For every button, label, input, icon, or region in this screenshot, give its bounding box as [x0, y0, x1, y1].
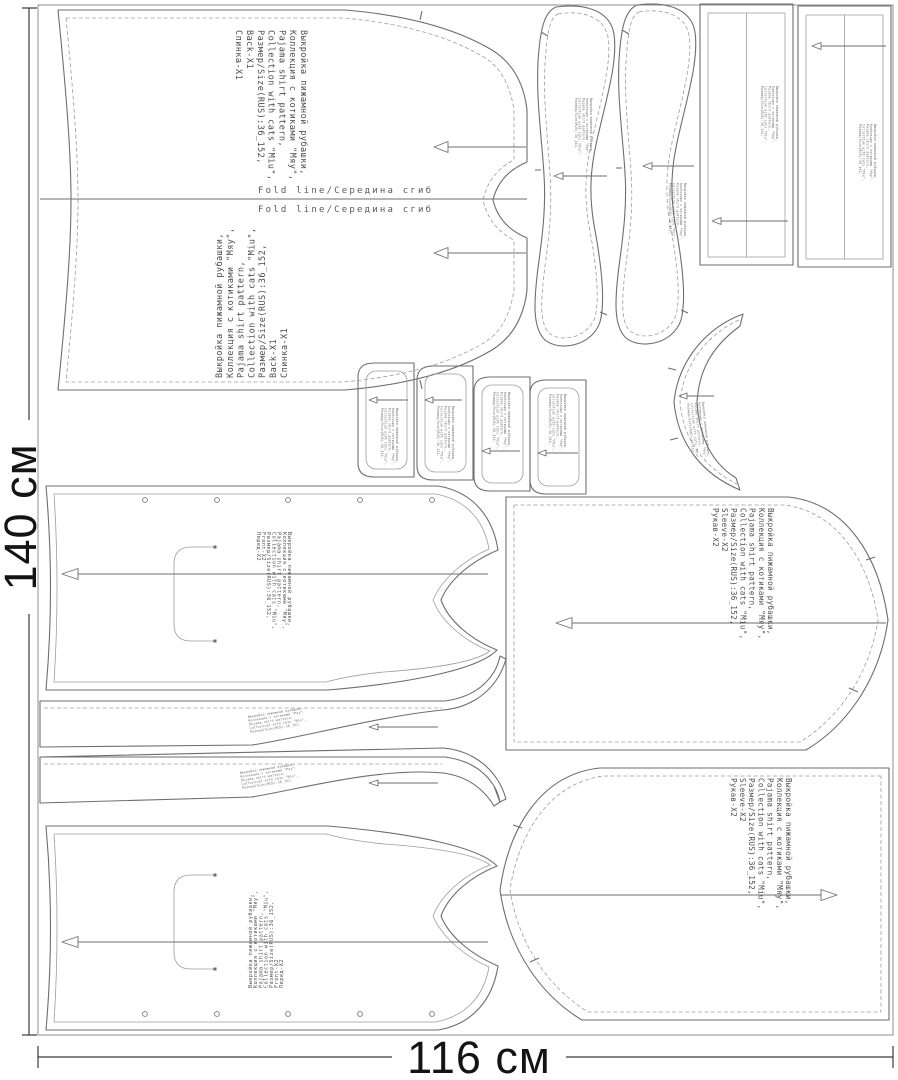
width-dimension-label: 116 см — [407, 1032, 551, 1080]
height-dimension-label: 140 см — [0, 443, 46, 590]
svg-text:Collection with cats "Miu",: Collection with cats "Miu", — [756, 778, 765, 910]
svg-text:Pajama shirt pattern,: Pajama shirt pattern, — [748, 508, 757, 610]
svg-text:Размер/Size(RUS):36_152,: Размер/Size(RUS):36_152, — [729, 508, 738, 625]
piece-info-text: Выкройка пижамной рубашки, Коллекция с к… — [233, 30, 309, 181]
svg-text:Коллекция с котиками "Мяу",: Коллекция с котиками "Мяу", — [775, 778, 784, 910]
pocket-piece-1: Выкройка пижамной рубашки, Коллекция с к… — [358, 363, 414, 477]
svg-text:Размер/Size(RUS):36_152,: Размер/Size(RUS):36_152, — [760, 86, 764, 137]
piece-info-text: Выкройка пижамной рубашки, Коллекция с к… — [436, 406, 456, 463]
svg-text:Pajama shirt pattern,: Pajama shirt pattern, — [237, 261, 247, 378]
svg-text:Размер/Size(RUS):36_152,: Размер/Size(RUS):36_152, — [492, 392, 496, 443]
grain-arrow-icon — [812, 43, 886, 50]
svg-text:Collection with cats "Miu",: Collection with cats "Miu", — [738, 508, 747, 640]
grain-arrow-icon — [425, 397, 462, 403]
pattern-sheet-drawing: 140 см 116 см Fold line/Середина сгиб Fo… — [0, 0, 898, 1080]
pocket-piece-2: Выкройка пижамной рубашки, Коллекция с к… — [417, 366, 473, 480]
svg-text:Размер/Size(RUS):36_152,: Размер/Size(RUS):36_152, — [858, 124, 862, 175]
svg-text:Sleeve-X2: Sleeve-X2 — [720, 508, 729, 552]
piece-info-text: Выкройка пижамной рубашки, Коллекция с к… — [858, 124, 878, 181]
piece-info-text: Выкройка пижамной рубашки, Коллекция с к… — [686, 402, 712, 461]
grain-arrow-icon — [62, 937, 488, 948]
cuff-piece-1: Выкройка пижамной рубашки, Коллекция с к… — [700, 4, 793, 265]
grain-arrow-icon — [679, 393, 714, 399]
svg-text:Перед-X2: Перед-X2 — [255, 532, 261, 561]
svg-text:Pajama shirt pattern,: Pajama shirt pattern, — [766, 778, 775, 880]
back-piece: Fold line/Середина сгиб Fold line/Середи… — [40, 10, 527, 390]
svg-text:Перед-X2: Перед-X2 — [279, 959, 285, 988]
piece-info-text: Выкройка пижамной рубашки, Коллекция с к… — [668, 183, 688, 240]
cuff-piece-2: Выкройка пижамной рубашки, Коллекция с к… — [798, 6, 891, 267]
placket-strip-2: Выкройка пижамной рубашки, Коллекция с к… — [40, 748, 506, 806]
piece-info-text: Выкройка пижамной рубашки, Коллекция с к… — [711, 508, 775, 640]
svg-text:Спинка-X1: Спинка-X1 — [233, 30, 243, 80]
grain-arrow-icon — [434, 248, 526, 259]
svg-text:Sleeve-X2: Sleeve-X2 — [738, 778, 747, 822]
svg-text:Back-X1: Back-X1 — [244, 30, 254, 69]
svg-text:Коллекция с котиками "Мяу",: Коллекция с котиками "Мяу", — [287, 30, 297, 181]
grain-arrow-icon — [538, 450, 578, 456]
svg-text:Размер/Size(RUS):36_152,: Размер/Size(RUS):36_152, — [258, 244, 268, 378]
fold-line-label: Fold line/Середина сгиб — [258, 204, 433, 215]
svg-text:Коллекция с котиками "Мяу",: Коллекция с котиками "Мяу", — [757, 508, 766, 640]
svg-text:Коллекция с котиками "Мяу",: Коллекция с котиками "Мяу", — [226, 228, 236, 379]
pocket-piece-4: Выкройка пижамной рубашки, Коллекция с к… — [530, 380, 586, 494]
grain-arrow-icon — [554, 173, 607, 180]
svg-text:Pajama shirt pattern,: Pajama shirt pattern, — [276, 30, 286, 147]
svg-text:Выкройка пижамной рубашки,: Выкройка пижамной рубашки, — [214, 233, 225, 378]
grain-arrow-icon — [556, 618, 886, 629]
svg-text:Размер/Size(RUS):36_152,: Размер/Size(RUS):36_152, — [436, 406, 440, 457]
pattern-sheet: 140 см 116 см Fold line/Середина сгиб Fo… — [0, 0, 898, 1080]
svg-text:Размер/Size(RUS):36_152,: Размер/Size(RUS):36_152, — [747, 778, 756, 895]
grain-arrow-icon — [369, 397, 408, 403]
collar-piece-2: Выкройка пижамной рубашки, Коллекция с к… — [616, 4, 696, 344]
piece-info-text: Выкройка пижамной рубашки, Коллекция с к… — [255, 532, 293, 630]
front-piece-bottom: Выкройка пижамной рубашки, Коллекция с к… — [46, 826, 498, 1030]
piece-info-text: Выкройка пижамной рубашки, Коллекция с к… — [247, 890, 285, 988]
svg-text:Размер/Size(RUS):36_152,: Размер/Size(RUS):36_152, — [255, 30, 265, 164]
svg-text:Спинка-X1: Спинка-X1 — [280, 328, 290, 378]
piece-info-text: Выкройка пижамной рубашки, Коллекция с к… — [380, 408, 400, 465]
svg-text:Back-X1: Back-X1 — [269, 339, 279, 378]
fold-line-label: Fold line/Середина сгиб — [258, 185, 433, 196]
piece-info-text: Выкройка пижамной рубашки, Коллекция с к… — [574, 98, 594, 155]
piece-info-text: Выкройка пижамной рубашки, Коллекция с к… — [239, 761, 299, 790]
svg-text:Выкройка пижамной рубашки,: Выкройка пижамной рубашки, — [298, 30, 309, 175]
grain-arrow-icon — [434, 142, 526, 153]
svg-text:Размер/Size(RUS):36_152,: Размер/Size(RUS):36_152, — [548, 394, 552, 445]
svg-text:Рукав-X2: Рукав-X2 — [711, 508, 720, 547]
sleeve-piece-right: Выкройка пижамной рубашки, Коллекция с к… — [506, 497, 888, 750]
svg-text:Размер/Size(RUS):36_152,: Размер/Size(RUS):36_152, — [668, 183, 672, 234]
height-dimension: 140 см — [0, 8, 46, 1035]
piece-info-text: Выкройка пижамной рубашки, Коллекция с к… — [548, 394, 568, 451]
svg-text:Размер/Size(RUS):36_152,: Размер/Size(RUS):36_152, — [380, 408, 384, 459]
piece-info-text: Выкройка пижамной рубашки, Коллекция с к… — [214, 228, 290, 379]
front-piece-top: Выкройка пижамной рубашки, Коллекция с к… — [46, 486, 498, 690]
pocket-piece-3: Выкройка пижамной рубашки, Коллекция с к… — [474, 377, 530, 491]
grain-arrow-icon — [712, 218, 788, 225]
piece-info-text: Выкройка пижамной рубашки, Коллекция с к… — [492, 392, 512, 449]
svg-text:Размер/Size(RUS):36_152,: Размер/Size(RUS):36_152, — [574, 98, 578, 149]
piece-info-text: Выкройка пижамной рубашки, Коллекция с к… — [760, 86, 780, 143]
piece-info-text: Выкройка пижамной рубашки, Коллекция с к… — [729, 778, 793, 910]
svg-text:Выкройка пижамной рубашки,: Выкройка пижамной рубашки, — [766, 508, 775, 635]
svg-text:Collection with cats "Miu",: Collection with cats "Miu", — [247, 228, 257, 379]
svg-text:Выкройка пижамной рубашки,: Выкройка пижамной рубашки, — [784, 778, 793, 905]
grain-arrow-icon — [482, 448, 520, 454]
svg-text:Рукав-X2: Рукав-X2 — [729, 778, 738, 817]
width-dimension: 116 см — [38, 1032, 893, 1080]
placket-strip-1: Выкройка пижамной рубашки, Коллекция с к… — [40, 656, 506, 747]
sleeve-piece-bottom: Выкройка пижамной рубашки, Коллекция с к… — [500, 768, 889, 1020]
svg-text:Collection with cats "Miu",: Collection with cats "Miu", — [266, 30, 276, 181]
piece-info-text: Выкройка пижамной рубашки, Коллекция с к… — [247, 705, 307, 734]
collar-piece-1: Выкройка пижамной рубашки, Коллекция с к… — [535, 6, 615, 346]
grain-arrow-icon — [369, 724, 438, 730]
grain-arrow-icon — [369, 780, 438, 786]
pocket-placement-mark — [174, 875, 215, 969]
pocket-placement-mark — [174, 547, 215, 641]
collar-stand-piece: Выкройка пижамной рубашки, Коллекция с к… — [668, 314, 743, 490]
